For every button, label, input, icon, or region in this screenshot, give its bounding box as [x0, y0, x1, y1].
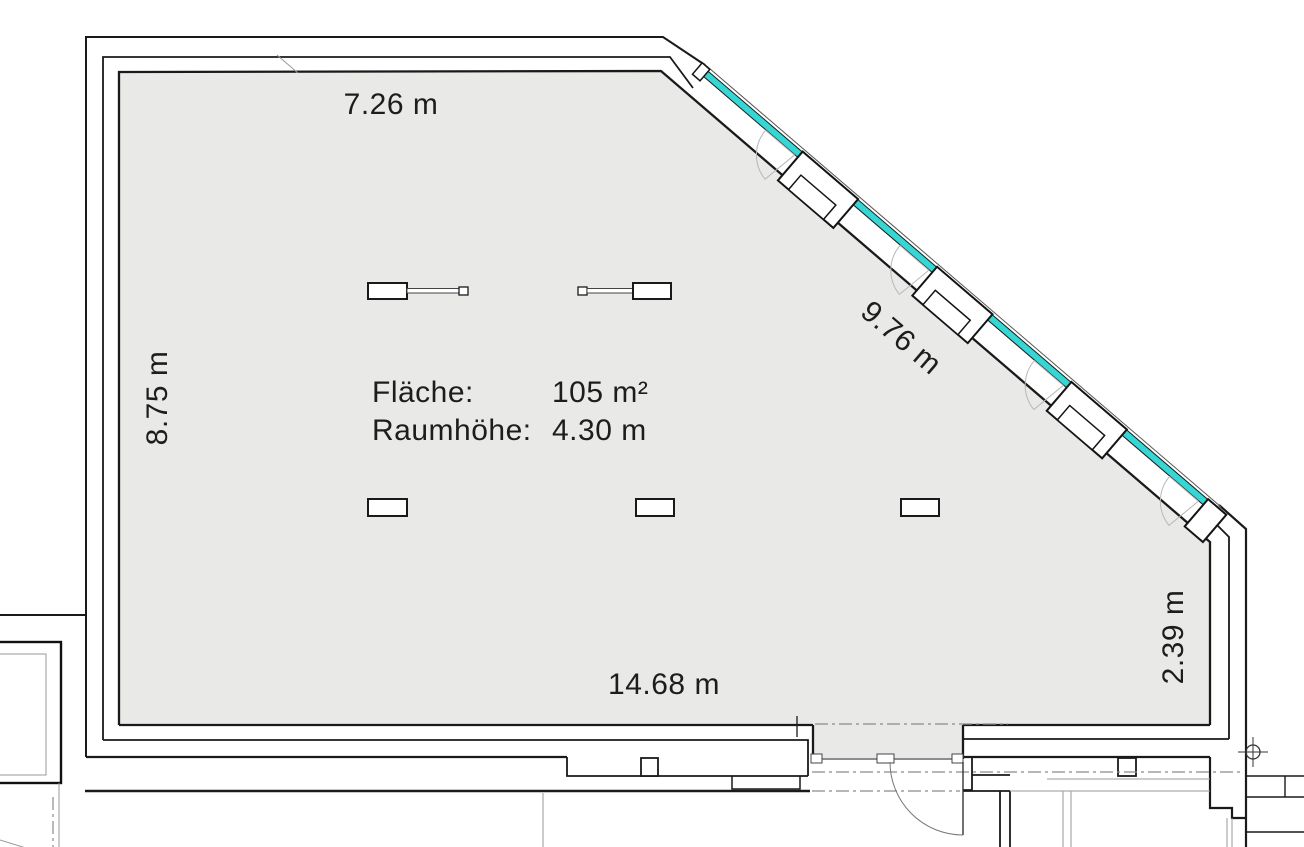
right-outer-wall: [1219, 505, 1246, 847]
room-height-label: Raumhöhe:: [372, 414, 532, 447]
floor-plan-canvas: 7.26 m 8.75 m 9.76 m 2.39 m 14.68 m Fläc…: [0, 0, 1304, 847]
reference-dash-dot-lines: [53, 724, 1240, 847]
bottom-wall-subrecess: [732, 776, 800, 789]
dimension-right: 2.39 m: [1157, 590, 1190, 685]
track-fixture-end: [578, 287, 587, 295]
door-swing-arc: [890, 762, 963, 835]
wall-divider-box: [1118, 758, 1136, 776]
track-fixture-rail: [587, 289, 633, 294]
track-fixture-body: [633, 283, 671, 299]
adjacent-structure-lines: [1246, 776, 1304, 832]
area-label: Fläche:: [372, 376, 474, 409]
floor-plan-drawing: 7.26 m 8.75 m 9.76 m 2.39 m 14.68 m Fläc…: [0, 0, 1304, 847]
surveyor-crosshair-icon: [1238, 737, 1268, 767]
room-height-value: 4.30 m: [552, 414, 647, 447]
annex-box: [0, 642, 61, 783]
room-floor: [119, 71, 1210, 760]
fixture-box: [901, 499, 939, 516]
threshold-notch: [952, 754, 963, 763]
bottom-wall-recess: [567, 757, 808, 776]
track-fixture-rail: [407, 289, 461, 294]
dimension-top: 7.26 m: [344, 88, 439, 121]
fixture-box: [636, 499, 674, 516]
area-value: 105 m²: [552, 376, 648, 409]
threshold-notch: [811, 754, 822, 763]
door-right-pilaster: [963, 757, 1010, 847]
dimension-left: 8.75 m: [141, 351, 174, 446]
dimension-bottom: 14.68 m: [608, 668, 720, 701]
right-corner-block: [1210, 757, 1246, 818]
threshold-notch: [877, 754, 894, 763]
wall-divider-box: [641, 758, 658, 776]
fixture-box: [368, 499, 407, 516]
track-fixture-body: [368, 283, 407, 299]
track-fixture-end: [459, 287, 468, 295]
